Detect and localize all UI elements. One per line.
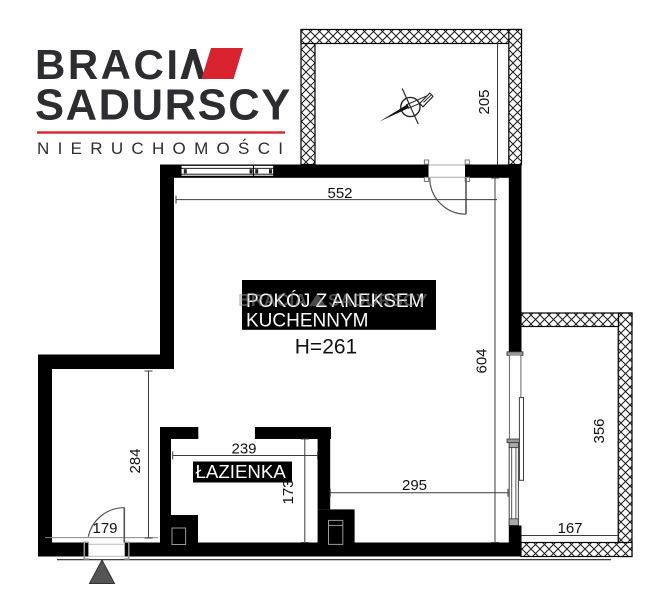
svg-text:173: 173 [280, 479, 297, 504]
svg-text:SADURSCY: SADURSCY [328, 290, 428, 310]
svg-text:KUCHENNYM: KUCHENNYM [246, 311, 368, 332]
svg-text:604: 604 [474, 348, 491, 373]
svg-text:BRACIA: BRACIA [238, 290, 307, 310]
svg-text:284: 284 [127, 448, 144, 473]
svg-text:H=261: H=261 [295, 336, 357, 359]
svg-text:179: 179 [92, 520, 117, 537]
svg-text:205: 205 [476, 89, 493, 114]
svg-text:ŁAZIENKA: ŁAZIENKA [196, 461, 287, 482]
svg-text:356: 356 [591, 418, 608, 443]
svg-text:239: 239 [231, 441, 256, 458]
svg-text:NIERUCHOMOŚCI: NIERUCHOMOŚCI [37, 139, 291, 158]
svg-text:167: 167 [557, 520, 582, 537]
svg-text:SADURSCY: SADURSCY [35, 82, 292, 130]
svg-text:552: 552 [327, 185, 352, 202]
svg-text:295: 295 [402, 477, 427, 494]
